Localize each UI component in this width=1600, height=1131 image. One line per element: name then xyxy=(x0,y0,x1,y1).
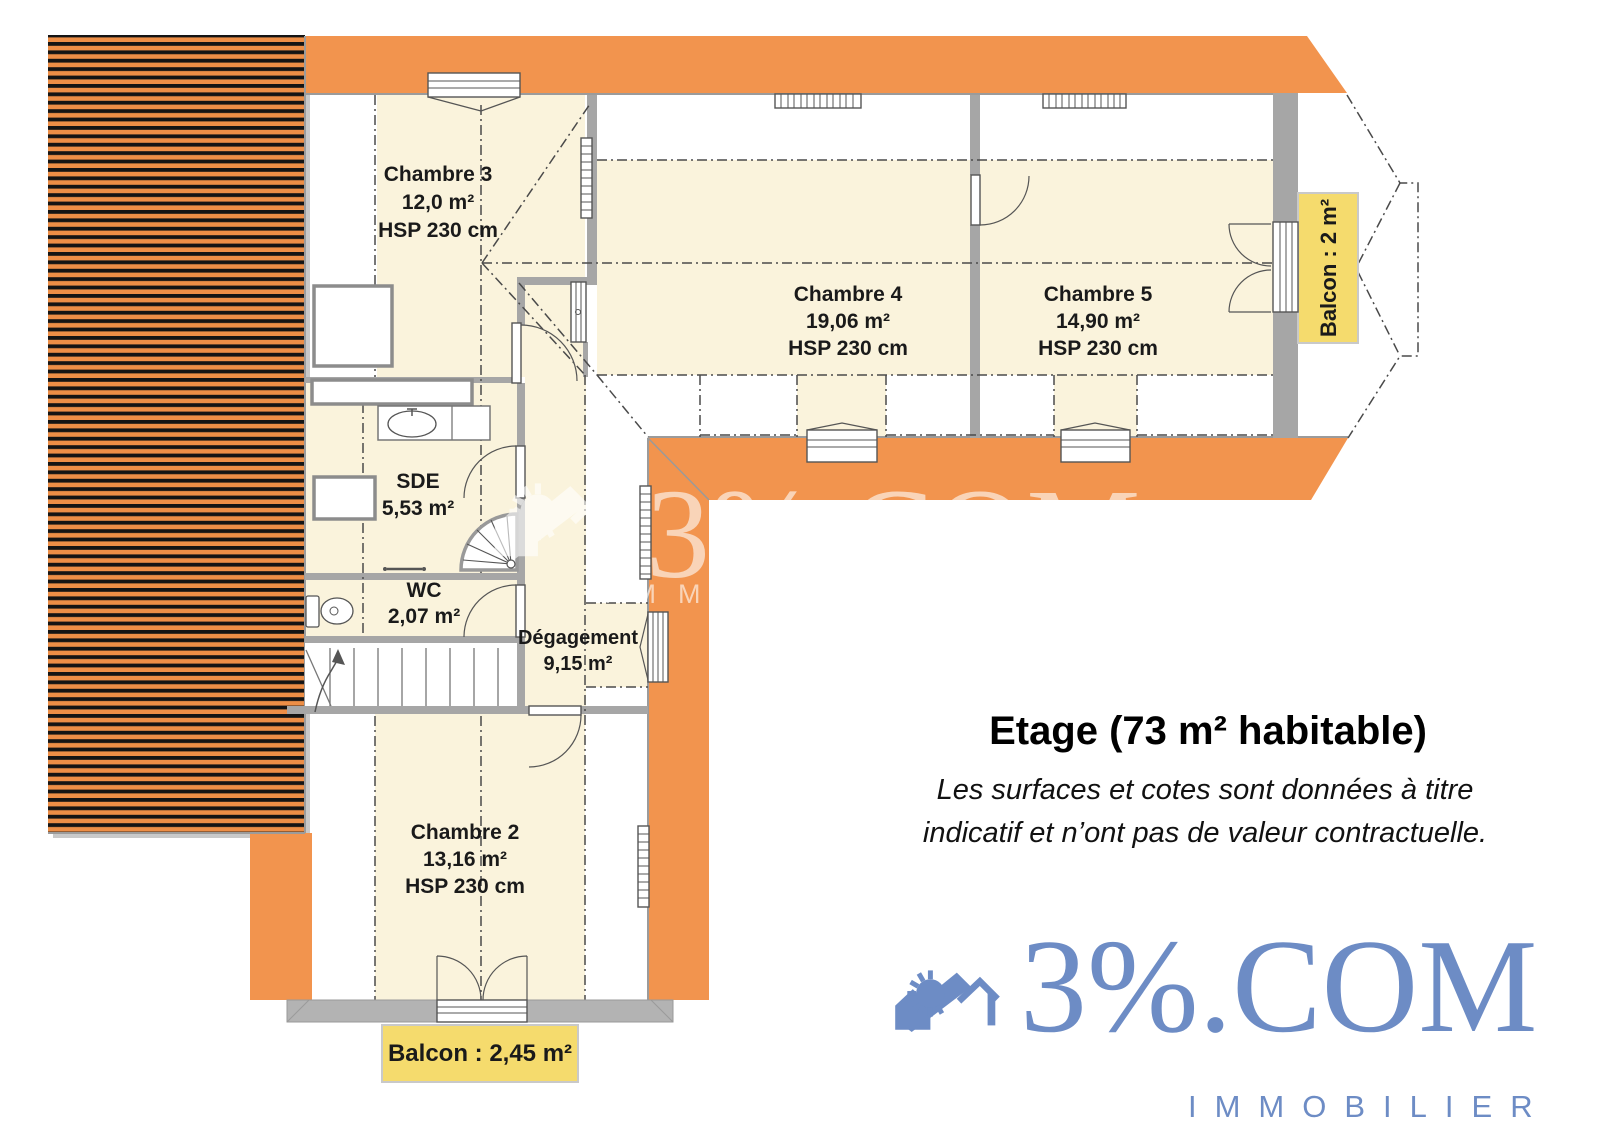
label-chambre2-area: 13,16 m² xyxy=(423,848,507,871)
label-balcony-bottom: Balcon : 2,45 m² xyxy=(388,1040,572,1067)
label-chambre4-name: Chambre 4 xyxy=(794,283,903,306)
roof-hatched-area xyxy=(48,35,310,838)
brand-logo: 3%.COM IMMOBILIER xyxy=(895,912,1550,1124)
disclaimer-line2: indicatif et n’ont pas de valeur contrac… xyxy=(923,817,1487,849)
brand-logo-text: 3%.COM xyxy=(1020,912,1537,1060)
window-ladder xyxy=(581,138,592,218)
page-title: Etage (73 m² habitable) xyxy=(989,709,1427,753)
disclaimer-line1: Les surfaces et cotes sont données à tit… xyxy=(937,774,1474,806)
window-comb-chambre5 xyxy=(1043,94,1126,108)
label-sde-name: SDE xyxy=(396,470,439,493)
label-chambre5-name: Chambre 5 xyxy=(1044,283,1153,306)
sink xyxy=(378,406,490,440)
label-chambre3-hsp: HSP 230 cm xyxy=(378,219,498,242)
label-wc-name: WC xyxy=(407,579,442,602)
watermark: 3%.COM IMMOBILIER xyxy=(495,463,1141,609)
toilet xyxy=(306,596,353,627)
label-chambre4-hsp: HSP 230 cm xyxy=(788,337,908,360)
door-chambre4 xyxy=(571,282,586,342)
floor-plan-drawing: Chambre 3 12,0 m² HSP 230 cm Chambre 4 1… xyxy=(0,0,1600,1131)
label-balcony-right: Balcon : 2 m² xyxy=(1316,199,1341,337)
label-chambre3-name: Chambre 3 xyxy=(384,163,493,186)
stairs xyxy=(305,643,517,712)
label-sde-area: 5,53 m² xyxy=(382,497,454,520)
watermark-subtext: IMMOBILIER xyxy=(604,579,983,609)
window-comb-chambre4 xyxy=(775,94,861,108)
brand-logo-subtext: IMMOBILIER xyxy=(1188,1089,1551,1124)
cabinet xyxy=(314,477,375,519)
label-wc-area: 2,07 m² xyxy=(388,605,460,628)
label-chambre5-hsp: HSP 230 cm xyxy=(1038,337,1158,360)
window-comb-chambre2 xyxy=(638,826,649,907)
area-chambre4-5 xyxy=(597,160,1273,375)
label-chambre2-hsp: HSP 230 cm xyxy=(405,875,525,898)
label-chambre4-area: 19,06 m² xyxy=(806,310,890,333)
label-chambre2-name: Chambre 2 xyxy=(411,821,520,844)
label-degagement-area: 9,15 m² xyxy=(544,653,613,675)
legend: Etage (73 m² habitable) Les surfaces et … xyxy=(923,709,1487,849)
wardrobe xyxy=(312,380,472,404)
dormer-box xyxy=(314,286,392,366)
label-chambre5-area: 14,90 m² xyxy=(1056,310,1140,333)
floor-plan-page: Chambre 3 12,0 m² HSP 230 cm Chambre 4 1… xyxy=(0,0,1600,1131)
label-chambre3-area: 12,0 m² xyxy=(402,191,474,214)
brand-logo-icon xyxy=(895,970,997,1032)
label-degagement-name: Dégagement xyxy=(518,627,638,649)
